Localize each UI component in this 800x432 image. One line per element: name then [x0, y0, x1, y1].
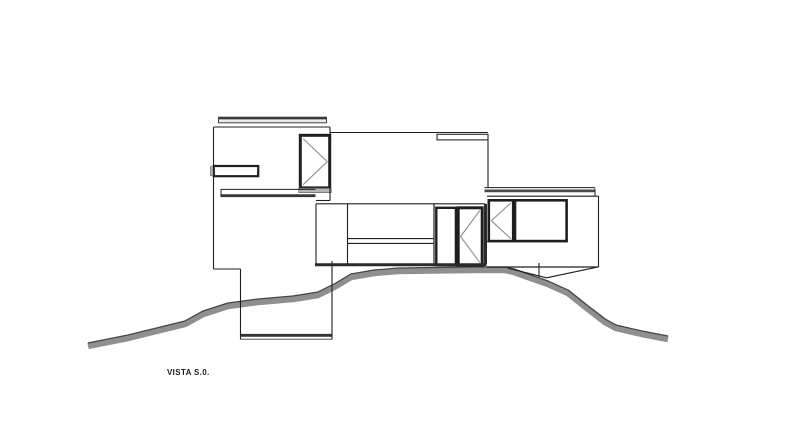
mid-casement-door: [458, 208, 482, 265]
left-casement-window: [300, 135, 329, 188]
elevation-svg: [0, 0, 800, 432]
keel-right: [547, 267, 597, 278]
terrain-band: [88, 270, 668, 346]
right-casement-window: [489, 200, 513, 241]
elevation-sheet: VISTA S.0.: [0, 0, 800, 432]
mid-door-panel: [436, 208, 456, 265]
drawing-caption: VISTA S.0.: [167, 368, 210, 377]
mid-parapet-slab: [437, 134, 488, 140]
left-slot-window: [214, 166, 258, 176]
right-picture-window: [515, 200, 567, 241]
